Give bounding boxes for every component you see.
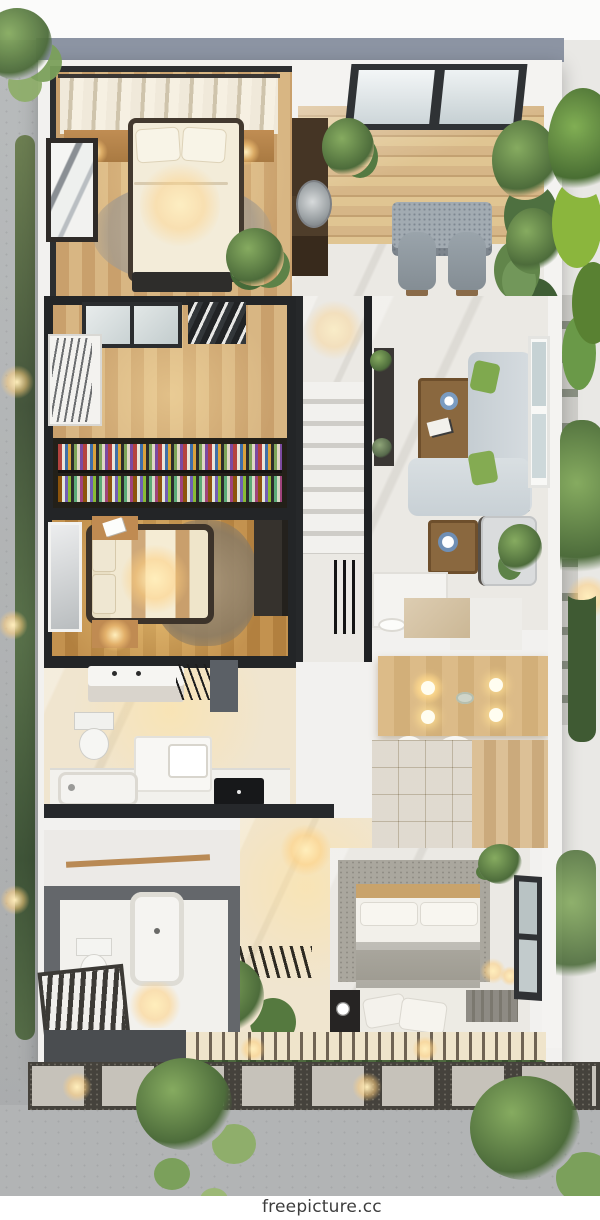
hedge-right-mid [560,420,600,600]
bed-light-sheen [140,160,220,250]
watermark-text: freepicture.cc [262,1197,382,1217]
roof-edge-band [36,38,564,62]
skylight-glass [439,70,519,124]
bathtub [130,892,184,986]
sofa-green-pillow [467,450,498,486]
floorplan-render: freepicture.cc [0,0,600,1220]
openarea-plant [322,118,374,176]
staircase [303,382,364,554]
console-plant [372,438,392,458]
gray-partition [210,660,238,712]
dining-chair [448,232,486,290]
kitchen-sink [378,618,406,632]
path-light [0,365,34,399]
console-plant [370,350,392,372]
toilet-bowl [79,728,109,760]
bedroom3-window-glass [519,881,537,934]
nightstand-clock [336,1002,350,1016]
ivy-right-bottom [556,850,596,1000]
bathkitchen-bottom-wall [44,804,334,818]
bath2-bottom-wall [44,1030,186,1064]
wall-art-frame [46,138,98,242]
coffee-table-plate [440,392,458,410]
kitchen-step [404,598,470,638]
clothes-rack [176,664,210,700]
bedroom2-mirror [48,522,82,632]
bedroom1-plant [226,228,284,286]
cooktop-knob [237,790,241,794]
bed3-headboard [356,884,480,898]
paver-light [352,1072,382,1102]
kitchen-tile-floor [372,740,472,848]
corridor-light [304,300,364,360]
study-skylight-glass [134,306,178,344]
tub-faucet [68,784,75,791]
shower-floor-light [126,982,184,1028]
deck-light [240,1036,266,1062]
paver-light [62,1072,92,1102]
bed3-pot-plant [478,844,522,884]
bedroom2-wardrobe [254,520,288,616]
vanity-sink [168,744,208,778]
tree-bottom-left [136,1058,232,1150]
kitchen-wood-floor [472,740,548,848]
pendant-globe-core [489,678,503,692]
living-window-glass [532,414,546,478]
pendant-globe-core [421,681,435,695]
cabinet-knob [136,671,141,676]
tub-drain [154,928,160,934]
side-table-bowl [438,532,458,552]
bed-pillow [135,127,181,164]
bedroom1-desk [132,272,232,292]
stair-railing [334,560,360,634]
top-sky-strip [0,0,600,40]
bed-pillow [181,127,227,164]
entry-light [280,824,332,876]
deck-light [412,1036,438,1062]
curtain-rod [58,74,280,78]
bed3-pillow [360,902,418,926]
cabinet-knob [112,671,117,676]
pendant-globe-core [421,710,435,724]
study-vent-unit [188,302,246,344]
table-centerpiece [456,692,474,704]
openarea-palm [506,208,560,274]
bed3-pillow [420,902,478,926]
tree-bottom-right [470,1076,580,1180]
pendant-globe-core [489,708,503,722]
living-window-glass [532,342,546,406]
skylight-glass [353,70,435,124]
lounge-plant [498,524,542,572]
study-wall-art-pattern [52,338,92,422]
bookshelf-row-top [58,444,282,473]
nightstand-lamp [98,618,132,652]
washing-machine [296,180,332,228]
bed3-foot-cushion [398,997,448,1035]
bookshelf-row-bottom [58,476,282,502]
path-light [0,885,30,915]
dining-chair [398,232,436,290]
kitchen-right-wall [548,630,562,848]
bed2-light [120,544,190,614]
bedroom3-window-glass [519,939,537,992]
bed2-pillow [92,574,116,614]
bed3-blanket [356,942,480,990]
bed3-bench [466,990,518,1022]
